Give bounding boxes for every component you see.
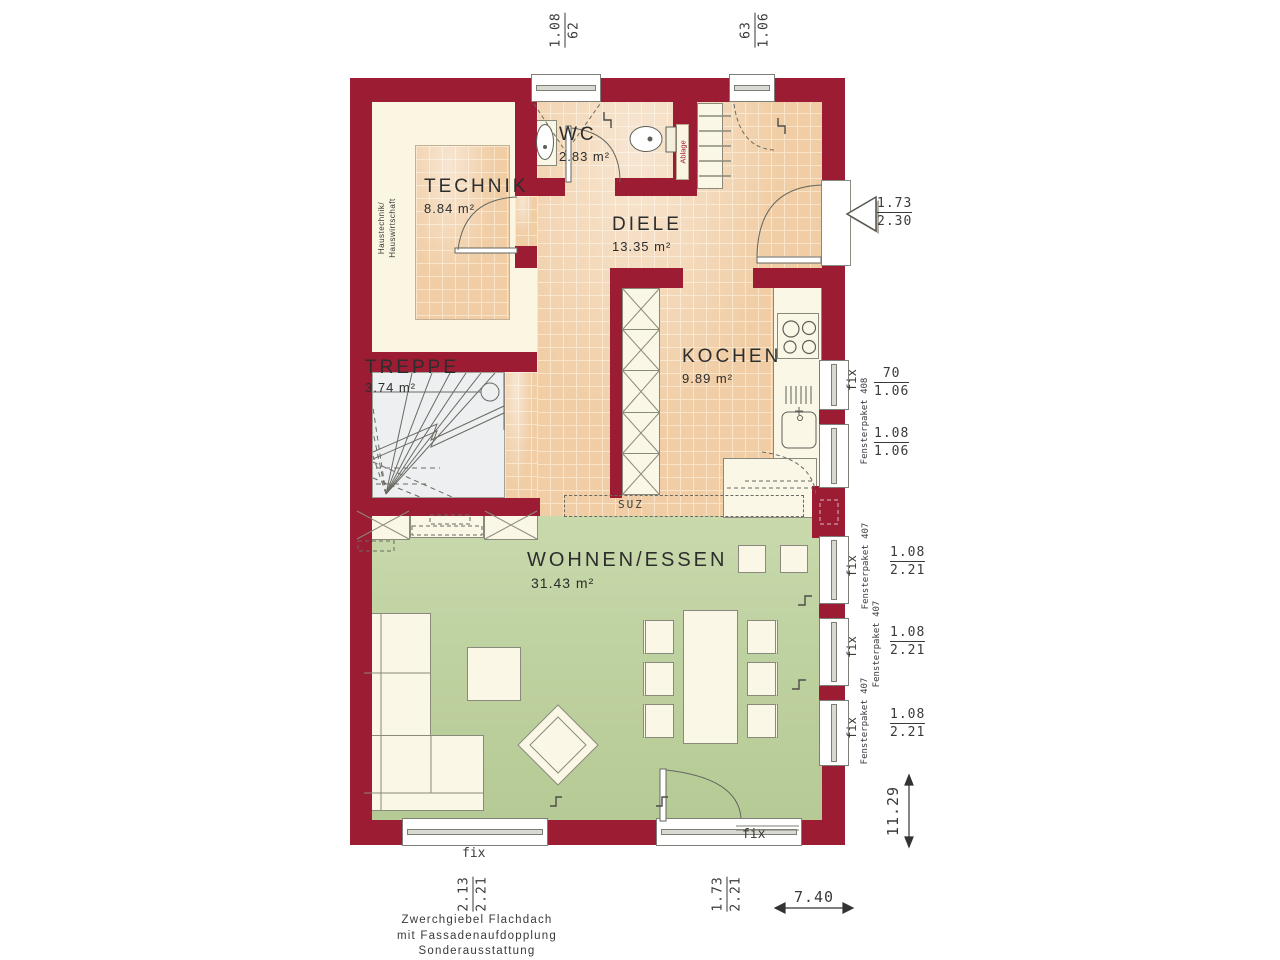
wall-segment [350,78,372,845]
wall-segment [753,268,822,288]
wall-segment [350,498,540,516]
dining-table [683,610,738,744]
floor-technik-inner-tile [415,145,510,320]
wall-segment [819,686,845,701]
bar-stool [738,545,766,573]
wall-segment [812,486,845,538]
floor-technik-notch [515,268,537,352]
wall-segment [537,178,565,196]
fix-label-kitchen: fix [845,369,859,391]
fix-label-living-2: fix [845,636,859,658]
wall-segment [819,604,845,619]
floor-plan-canvas: TECHNIK 8.84 m² WC 2.83 m² DIELE 13.35 m… [0,0,1280,960]
room-label-technik: TECHNIK 8.84 m² [424,176,528,216]
fensterpaket-407-label-2: Fensterpaket 407 [872,601,882,688]
ablage-label: Ablage [679,140,688,163]
fensterpaket-408-label: Fensterpaket 408 [860,378,870,465]
dim-kitchen-window-1: 701.06 [874,366,909,399]
window-top-2 [729,74,775,102]
dim-top-window-2: 631.06 [739,12,772,47]
wall-segment [515,246,537,268]
fix-label-living-3: fix [845,717,859,739]
dining-chair [643,620,674,654]
window-kitchen-2 [819,424,849,488]
suz-label: SUZ [618,498,644,511]
dim-kitchen-window-2: 1.081.06 [874,426,909,459]
fix-label-bottom-door: fix [742,827,765,842]
stove [777,313,819,359]
dining-chair [643,704,674,738]
room-label-treppe: TREPPE 3.74 m² [365,357,459,395]
wall-segment [822,78,845,180]
sideboard-middle [410,514,484,538]
dim-bottom-window: 2.132.21 [457,876,490,911]
fix-label-living-1: fix [845,555,859,577]
dim-living-window-2: 1.082.21 [890,625,925,658]
entrance-door-opening [821,180,851,266]
wall-segment [822,266,845,362]
dim-entrance-door: 1.732.30 [877,196,912,229]
room-label-diele: DIELE 13.35 m² [612,214,682,254]
dining-chair [747,620,778,654]
dim-top-window-1: 1.0862 [549,12,582,47]
haustechnik-annotation: Haustechnik/ Hauswirtschaft [376,198,398,257]
dining-chair [643,662,674,696]
dim-total-depth: 11.29 [884,786,902,836]
fensterpaket-407-label-1: Fensterpaket 407 [861,523,871,610]
sofa-horizontal [363,735,484,811]
window-bottom-fix [402,818,548,846]
room-label-wohnen: WOHNEN/ESSEN 31.43 m² [527,549,727,591]
entrance-arrow [847,197,879,234]
window-top-1 [531,74,601,102]
dim-living-window-1: 1.082.21 [890,545,925,578]
wall-segment [822,766,845,845]
dining-chair [747,704,778,738]
dining-chair [747,662,778,696]
dim-total-width: 7.40 [788,888,840,906]
wall-segment [610,268,622,498]
dim-bottom-door: 1.732.21 [711,876,744,911]
dim-living-window-3: 1.082.21 [890,707,925,740]
floor-tile-corridor [505,372,537,516]
door-window-bottom [656,818,802,846]
plan-footnote: Zwerchgiebel Flachdach mit Fassadenaufdo… [332,913,622,960]
coat-rack [697,103,723,189]
fix-label-bottom-window: fix [462,846,485,861]
coffee-table [467,647,521,701]
suz-zone [564,495,804,517]
room-label-wc: WC 2.83 m² [559,124,610,164]
kitchen-tall-cabinets [622,288,660,495]
bar-stool [780,545,808,573]
wall-segment [819,410,845,425]
fensterpaket-407-label-3: Fensterpaket 407 [860,678,870,765]
room-label-kochen: KOCHEN 9.89 m² [682,346,781,386]
